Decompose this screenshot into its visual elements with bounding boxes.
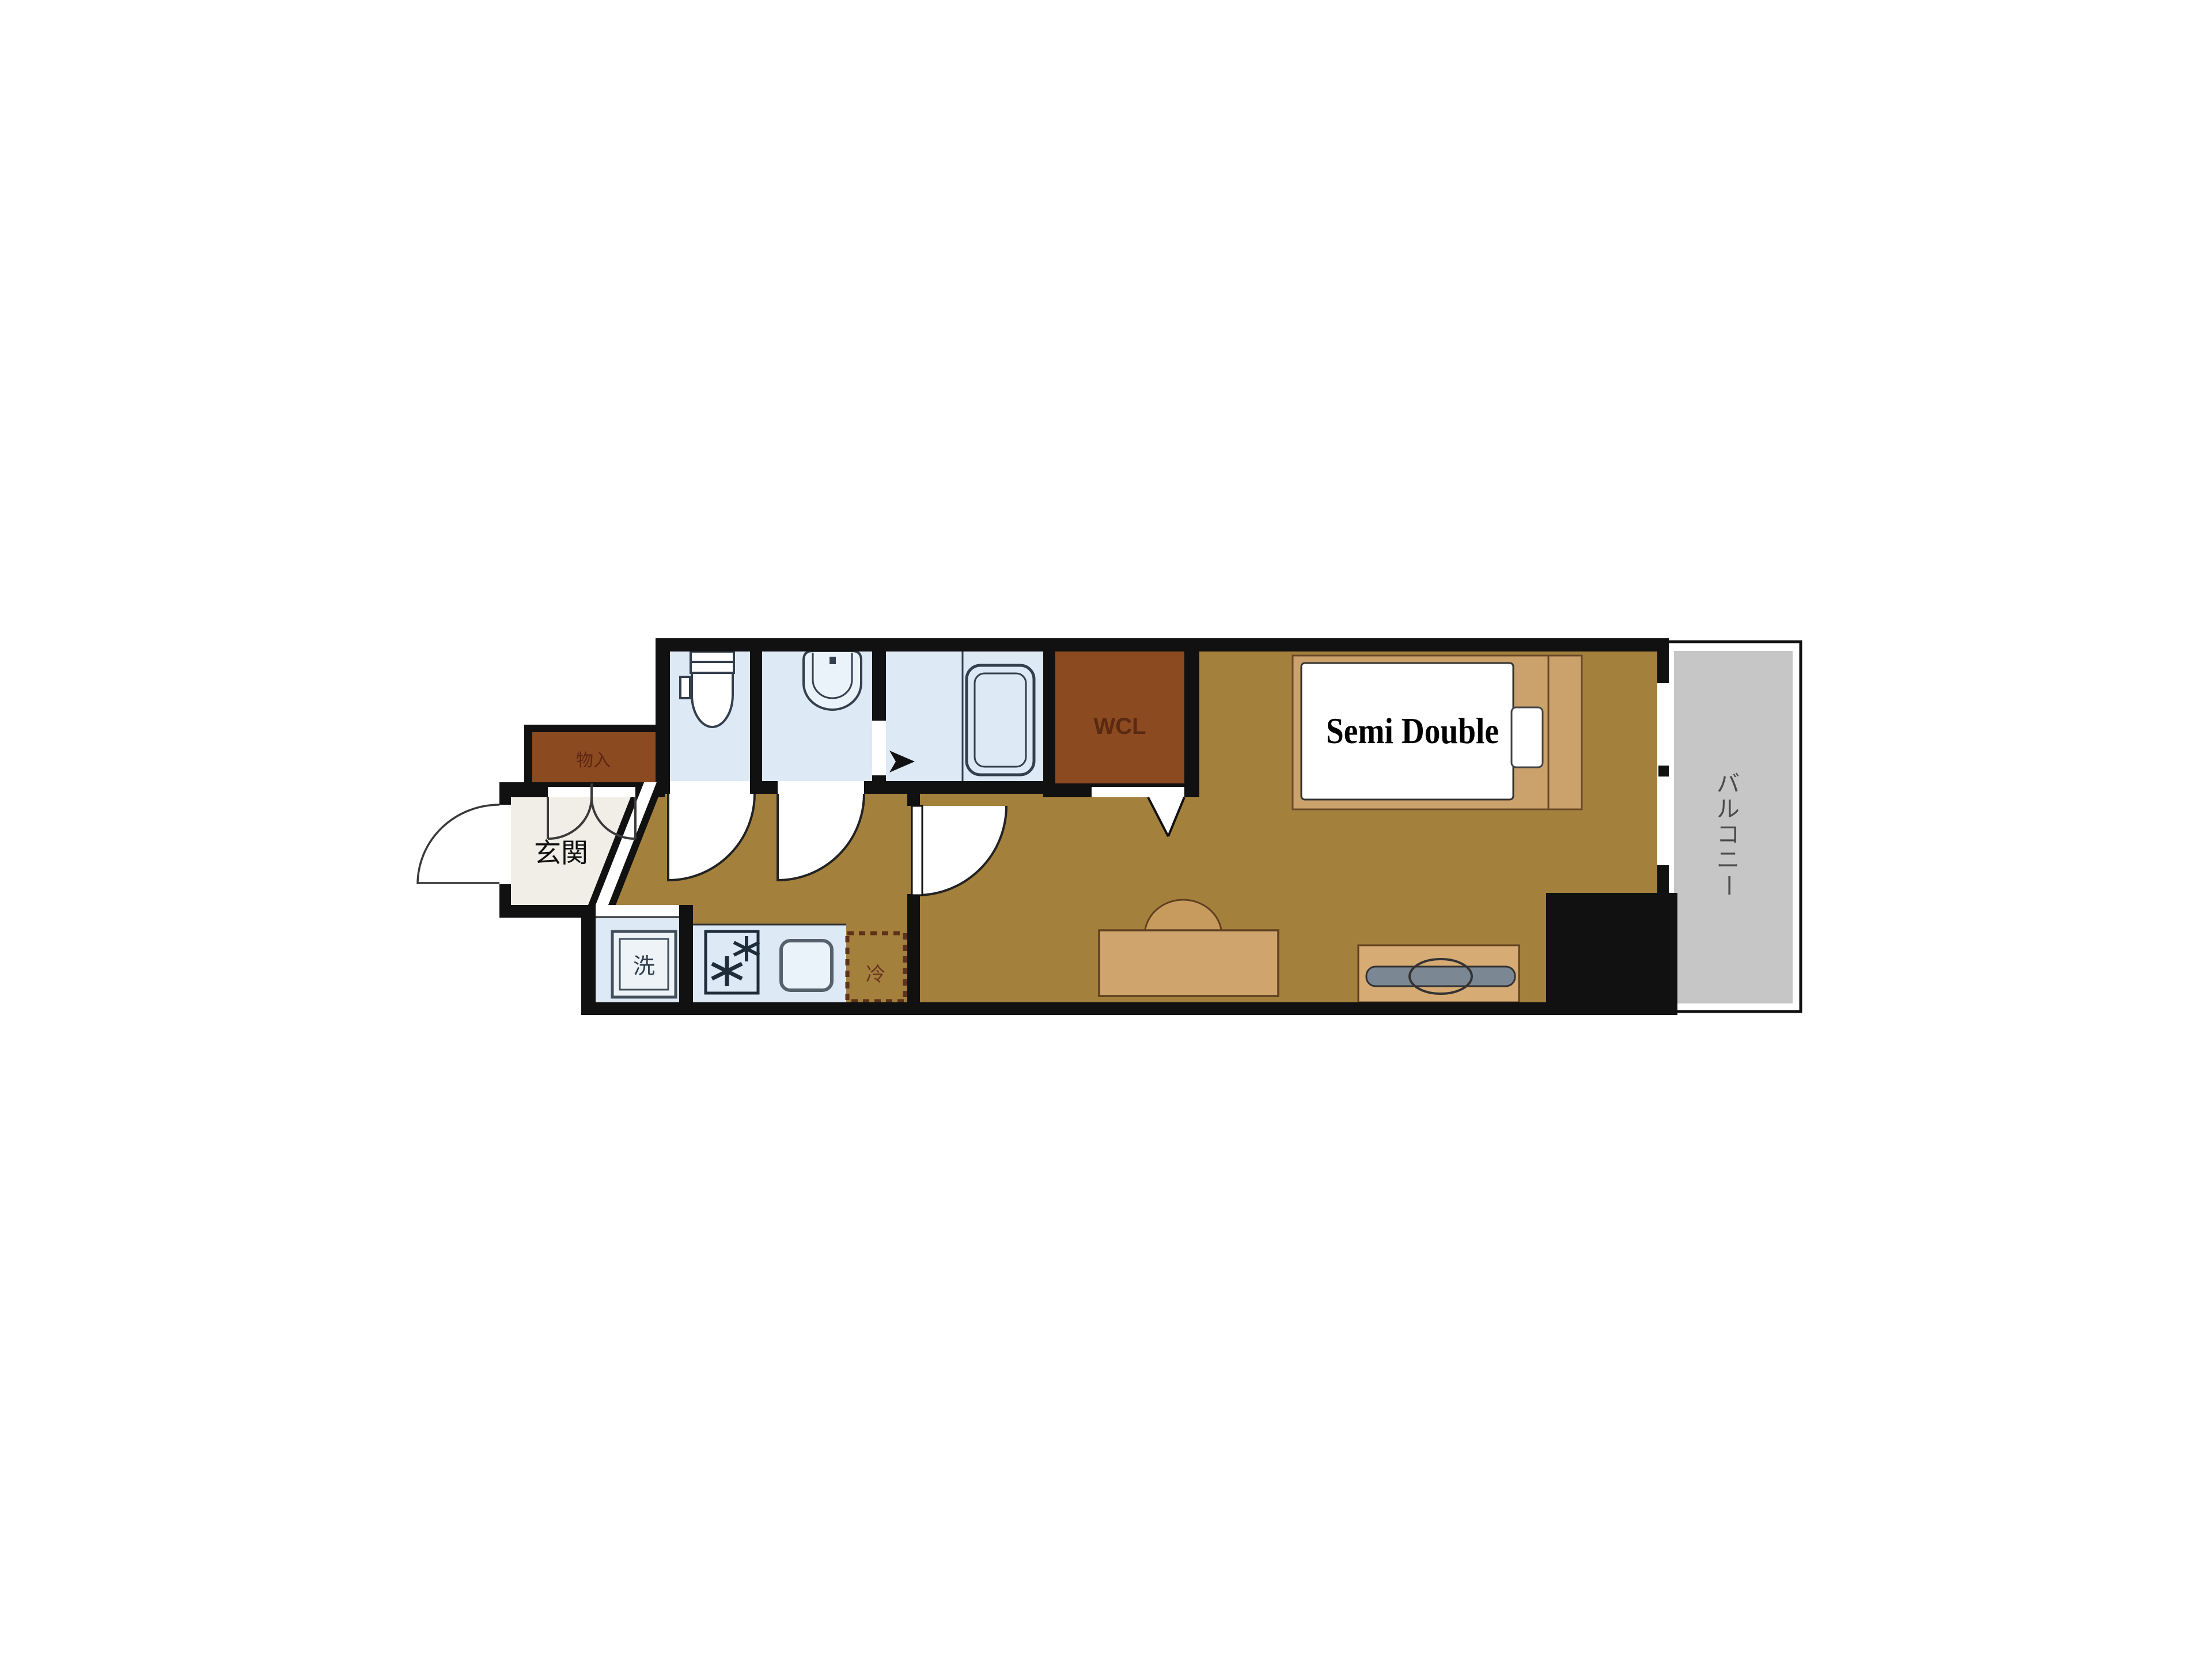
svg-text:物入: 物入 — [576, 751, 611, 770]
svg-text:玄関: 玄関 — [534, 838, 588, 868]
svg-text:ー: ー — [1715, 874, 1741, 897]
svg-text:Semi Double: Semi Double — [1326, 710, 1499, 751]
svg-text:ニ: ニ — [1717, 847, 1740, 873]
svg-text:コ: コ — [1717, 822, 1740, 847]
svg-text:WCL: WCL — [1093, 714, 1146, 739]
svg-text:洗: 洗 — [633, 955, 655, 979]
svg-text:冷: 冷 — [866, 964, 885, 986]
svg-text:ル: ル — [1717, 797, 1740, 822]
svg-text:バ: バ — [1717, 771, 1740, 797]
